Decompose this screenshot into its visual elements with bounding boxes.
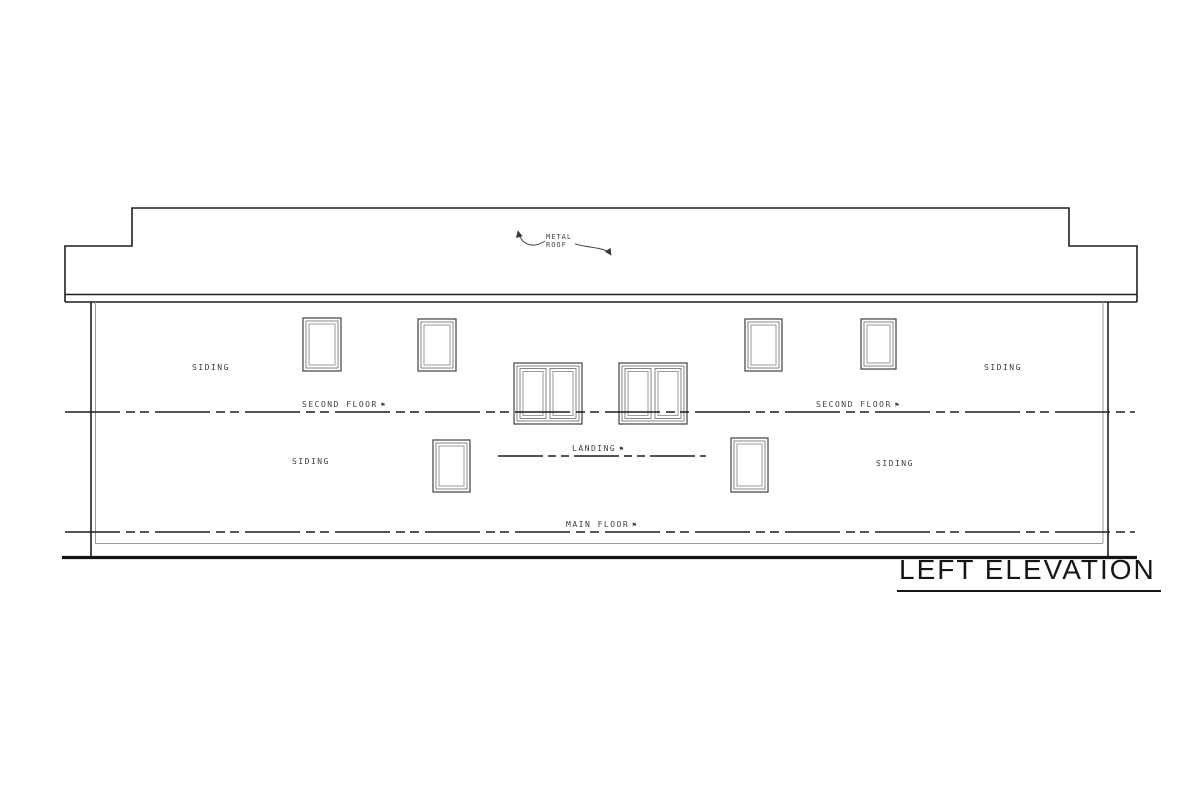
roof-outline bbox=[65, 208, 1137, 302]
siding-note-lower-left: SIDING bbox=[292, 457, 330, 467]
second-floor-label-right: SECOND FLOOR⚑ bbox=[816, 400, 899, 410]
siding-note-upper-left: SIDING bbox=[192, 363, 230, 373]
landing-label-text: LANDING bbox=[572, 444, 616, 453]
siding-note-lower-left-text: SIDING bbox=[292, 457, 330, 466]
second-floor-label-left-text: SECOND FLOOR bbox=[302, 400, 378, 409]
datum-flag-icon: ⚑ bbox=[632, 521, 636, 529]
siding-note-upper-right-text: SIDING bbox=[984, 363, 1022, 372]
elevation-sheet: METAL ROOF SIDING SIDING SIDING SIDING S… bbox=[0, 0, 1200, 800]
window-upper-right-1 bbox=[745, 319, 782, 371]
main-floor-label-text: MAIN FLOOR bbox=[566, 520, 629, 529]
window-stairwell-right bbox=[619, 363, 687, 424]
window-upper-right-2 bbox=[861, 319, 896, 369]
main-floor-label: MAIN FLOOR⚑ bbox=[566, 520, 636, 530]
window-lower-right bbox=[731, 438, 768, 492]
metal-roof-leader-right bbox=[575, 244, 611, 255]
siding-note-lower-right: SIDING bbox=[876, 459, 914, 469]
metal-roof-note: METAL ROOF bbox=[546, 233, 572, 249]
siding-note-lower-right-text: SIDING bbox=[876, 459, 914, 468]
siding-note-upper-right: SIDING bbox=[984, 363, 1022, 373]
landing-label: LANDING⚑ bbox=[572, 444, 623, 454]
metal-roof-note-line1: METAL bbox=[546, 233, 572, 241]
siding-note-upper-left-text: SIDING bbox=[192, 363, 230, 372]
drawing-title-text: LEFT ELEVATION bbox=[899, 554, 1156, 585]
window-upper-left-1 bbox=[303, 318, 341, 371]
drawing-title: LEFT ELEVATION bbox=[897, 553, 1161, 592]
second-floor-label-left: SECOND FLOOR⚑ bbox=[302, 400, 385, 410]
metal-roof-note-line2: ROOF bbox=[546, 241, 572, 249]
window-stairwell-left bbox=[514, 363, 582, 424]
second-floor-label-right-text: SECOND FLOOR bbox=[816, 400, 892, 409]
datum-flag-icon: ⚑ bbox=[895, 401, 899, 409]
elevation-linework bbox=[0, 0, 1200, 800]
metal-roof-leader-left bbox=[518, 231, 545, 245]
datum-flag-icon: ⚑ bbox=[381, 401, 385, 409]
window-lower-left bbox=[433, 440, 470, 492]
datum-flag-icon: ⚑ bbox=[619, 445, 623, 453]
window-upper-left-2 bbox=[418, 319, 456, 371]
